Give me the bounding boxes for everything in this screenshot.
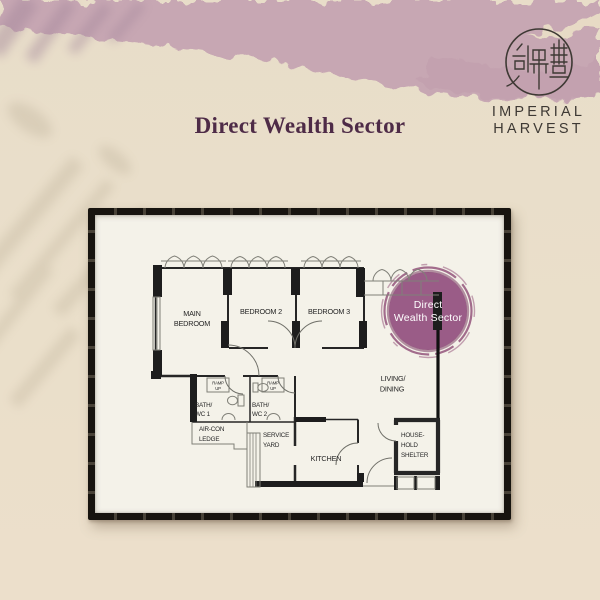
label-service-1: SERVICE bbox=[263, 432, 289, 439]
label-shelter-2: HOLD bbox=[401, 442, 418, 449]
brand-block: IMPERIAL HARVEST bbox=[461, 24, 600, 138]
label-main-bedroom-2: BEDROOM bbox=[174, 319, 210, 328]
leaf-shadows-on-pink bbox=[0, 0, 145, 64]
label-ramp2-2: UP bbox=[270, 386, 276, 391]
imperial-harvest-seal-icon bbox=[497, 24, 581, 102]
brand-line-1: IMPERIAL bbox=[461, 104, 600, 121]
small-labels: BATH/ WC 1 BATH/ WC 2 AIR-CON LEDGE SERV… bbox=[195, 402, 429, 459]
brand-wordmark: IMPERIAL HARVEST bbox=[461, 104, 600, 138]
label-shelter-1: HOUSE- bbox=[401, 432, 424, 439]
floorplan-frame: MAIN BEDROOM BEDROOM 2 BEDROOM 3 LIVING/… bbox=[88, 208, 511, 520]
frame-tick-top bbox=[88, 208, 511, 215]
label-bath1-2: WC 1 bbox=[195, 411, 211, 418]
floorplan-drawing: MAIN BEDROOM BEDROOM 2 BEDROOM 3 LIVING/… bbox=[95, 215, 504, 513]
highlight-line-2: Wealth Sector bbox=[394, 312, 463, 324]
label-living-1: LIVING/ bbox=[381, 374, 407, 383]
label-ramp1-1: RAMP bbox=[212, 381, 224, 386]
label-main-bedroom-1: MAIN bbox=[183, 309, 200, 318]
label-living-2: DINING bbox=[380, 385, 405, 394]
brand-line-2: HARVEST bbox=[461, 121, 600, 138]
label-ramp1-2: UP bbox=[215, 386, 221, 391]
label-shelter-3: SHELTER bbox=[401, 452, 429, 459]
label-kitchen: KITCHEN bbox=[311, 454, 342, 463]
frame-tick-bottom bbox=[88, 513, 511, 520]
label-bath2-2: WC 2 bbox=[252, 411, 268, 418]
floorplan-paper: MAIN BEDROOM BEDROOM 2 BEDROOM 3 LIVING/… bbox=[95, 215, 504, 513]
frame-tick-right bbox=[504, 208, 511, 520]
frame-tick-left bbox=[88, 208, 95, 520]
ramp-labels: RAMP UP RAMP UP bbox=[212, 381, 279, 392]
label-bedroom2: BEDROOM 2 bbox=[240, 307, 282, 316]
label-aircon-1: AIR-CON bbox=[199, 426, 225, 433]
highlight-line-1: Direct bbox=[414, 299, 443, 311]
label-bath2-1: BATH/ bbox=[252, 402, 270, 409]
label-aircon-2: LEDGE bbox=[199, 436, 219, 443]
label-ramp2-1: RAMP bbox=[267, 381, 279, 386]
direct-wealth-sector-highlight bbox=[382, 265, 475, 358]
label-service-2: YARD bbox=[263, 442, 280, 449]
label-bath1-1: BATH/ bbox=[195, 402, 213, 409]
label-bedroom3: BEDROOM 3 bbox=[308, 307, 350, 316]
